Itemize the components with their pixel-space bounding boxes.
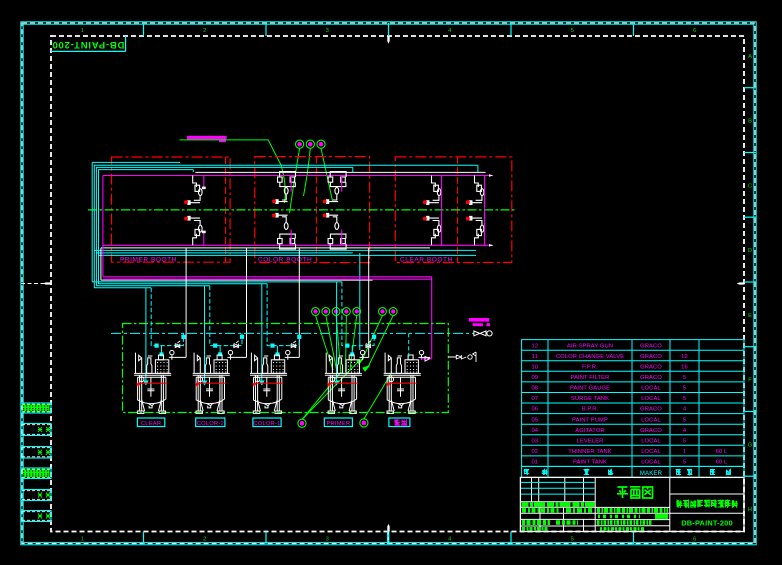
svg-text:3: 3 [326, 28, 329, 34]
svg-text:2: 2 [203, 537, 206, 543]
svg-text:E: E [748, 313, 752, 319]
svg-text:1: 1 [81, 537, 84, 543]
svg-text:2: 2 [203, 28, 206, 34]
svg-text:B.P.R.: B.P.R. [582, 407, 599, 413]
svg-text:F.P.R.: F.P.R. [582, 364, 598, 370]
svg-text:5: 5 [683, 396, 686, 402]
svg-text:6: 6 [693, 28, 696, 34]
svg-text:CLEAR: CLEAR [141, 421, 161, 427]
svg-text:LOCAL: LOCAL [641, 449, 661, 455]
svg-text:09: 09 [531, 375, 538, 381]
svg-text:GRACO: GRACO [640, 343, 662, 349]
svg-text:GRACO: GRACO [640, 428, 662, 434]
svg-text:12: 12 [681, 354, 688, 360]
svg-text:03: 03 [531, 438, 538, 444]
svg-text:DB-PAINT-200: DB-PAINT-200 [52, 39, 125, 50]
svg-text:COLOR-1: COLOR-1 [253, 421, 280, 427]
svg-text:A: A [748, 54, 752, 60]
svg-text:AGITATOR: AGITATOR [575, 428, 604, 434]
svg-text:D: D [748, 248, 752, 254]
svg-text:5: 5 [683, 438, 686, 444]
svg-text:COLOR-2: COLOR-2 [197, 421, 224, 427]
svg-text:THINNER TANK: THINNER TANK [568, 449, 612, 455]
svg-text:04: 04 [531, 428, 538, 434]
svg-text:06: 06 [531, 407, 538, 413]
svg-text:LEVELER: LEVELER [577, 438, 604, 444]
svg-text:LOCAL: LOCAL [641, 396, 661, 402]
svg-text:08: 08 [531, 386, 538, 392]
svg-text:DB-PAINT-200: DB-PAINT-200 [681, 519, 733, 528]
svg-text:SURGE TANK: SURGE TANK [571, 396, 609, 402]
svg-text:60 L: 60 L [716, 460, 728, 466]
svg-text:60 L: 60 L [716, 449, 728, 455]
svg-text:5: 5 [571, 28, 574, 34]
svg-text:07: 07 [531, 396, 538, 402]
svg-text:5: 5 [683, 417, 686, 423]
svg-text:COLOR BOOTH: COLOR BOOTH [258, 257, 312, 264]
svg-text:PRIMER BOOTH: PRIMER BOOTH [120, 257, 177, 264]
svg-text:16: 16 [681, 364, 688, 370]
svg-text:GRACO: GRACO [640, 364, 662, 370]
svg-text:10: 10 [531, 364, 538, 370]
svg-text:COLOR CHANGE VALVE: COLOR CHANGE VALVE [556, 354, 624, 360]
svg-text:5: 5 [683, 386, 686, 392]
svg-text:GRACO: GRACO [640, 354, 662, 360]
svg-text:LOCAL: LOCAL [641, 386, 661, 392]
svg-text:LOCAL: LOCAL [641, 438, 661, 444]
svg-text:F: F [748, 378, 752, 384]
svg-text:1: 1 [81, 28, 84, 34]
svg-text:6: 6 [693, 537, 696, 543]
svg-text:LOCAL: LOCAL [641, 460, 661, 466]
svg-text:GRACO: GRACO [640, 375, 662, 381]
svg-text:CLEAR BOOTH: CLEAR BOOTH [400, 257, 453, 264]
svg-text:PAINT TANK: PAINT TANK [573, 460, 607, 466]
svg-text:H: H [748, 507, 752, 513]
svg-text:B: B [748, 119, 752, 125]
svg-text:1: 1 [683, 449, 686, 455]
svg-text:11: 11 [532, 354, 538, 360]
svg-text:3: 3 [326, 537, 329, 543]
svg-text:AIR SPRAY GUN: AIR SPRAY GUN [567, 343, 613, 349]
svg-text:G: G [748, 442, 753, 448]
svg-text:05: 05 [531, 417, 538, 423]
svg-text:5: 5 [571, 537, 574, 543]
svg-text:LOCAL: LOCAL [641, 417, 661, 423]
svg-text:5: 5 [683, 375, 686, 381]
svg-text:01: 01 [531, 460, 538, 466]
svg-text:02: 02 [531, 449, 538, 455]
svg-text:PAINT FILTER: PAINT FILTER [571, 375, 610, 381]
svg-text:GRACO: GRACO [640, 407, 662, 413]
svg-text:PAINT GAUGE: PAINT GAUGE [570, 386, 610, 392]
svg-text:PRIMER: PRIMER [326, 421, 350, 427]
svg-text:MAKER: MAKER [640, 471, 663, 477]
svg-text:PAINT PUMP: PAINT PUMP [572, 417, 608, 423]
svg-text:12: 12 [531, 343, 538, 349]
svg-text:5: 5 [683, 460, 686, 466]
svg-text:C: C [748, 183, 752, 189]
